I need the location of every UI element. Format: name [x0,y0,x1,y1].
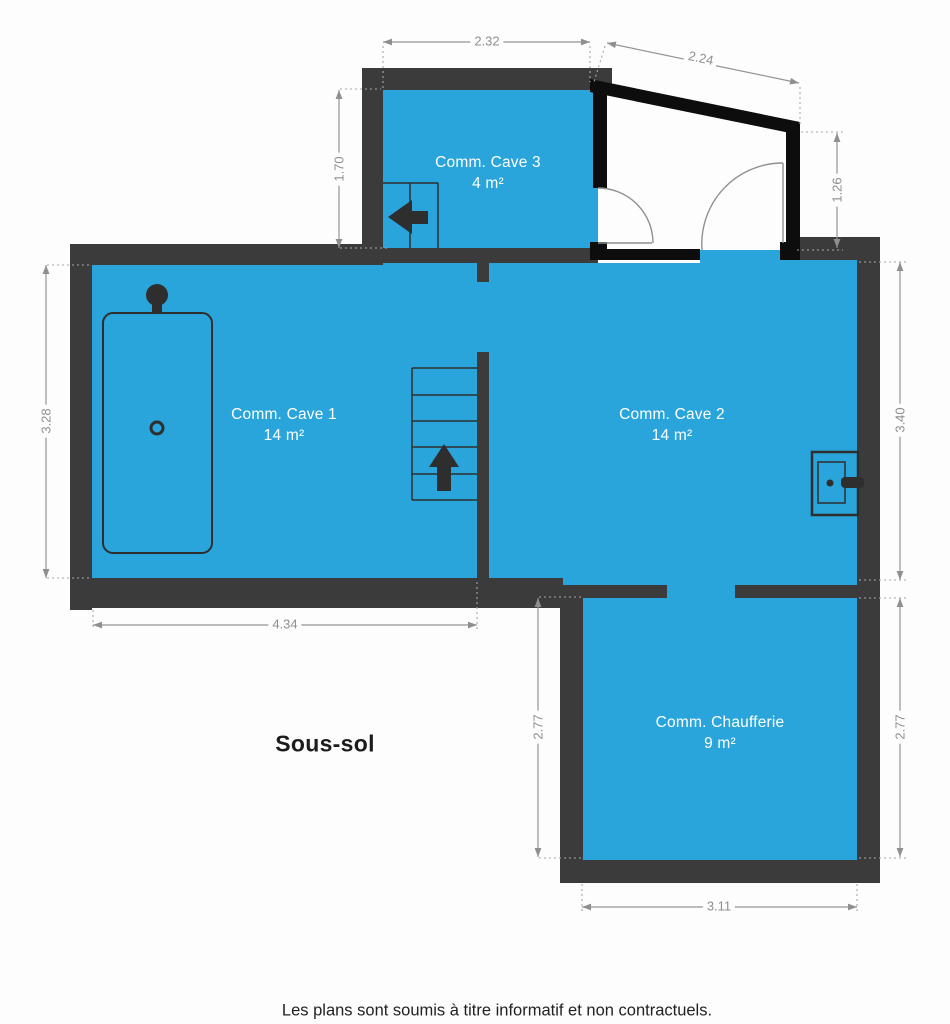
wall-chaufferie-left [560,585,583,883]
room-floor-topright-sliver [782,260,858,264]
wall-cave2-chaufferie-b [735,585,857,598]
room-label-chaufferie: Comm. Chaufferie 9 m² [656,712,785,754]
room-area: 9 m² [656,733,785,754]
dim-label-cave1-bottom: 4.34 [268,617,301,632]
wall-under-cave3 [362,248,598,263]
dim-label-cave2-right: 3.40 [893,403,908,436]
room-floor-cave1-cave2-passage [477,282,489,352]
entrance-walls [590,79,800,260]
wall-stub-cave1-cave2 [477,263,489,282]
wall-chaufferie-bottom [560,860,880,883]
doors-layer [598,163,783,250]
room-name: Comm. Chaufferie [656,712,785,733]
wall-right [857,237,880,883]
dim-label-chaufferie-bottom: 3.11 [703,899,735,914]
wall-entrance-right [786,122,800,260]
wall-entrance-angled [590,79,800,135]
room-label-cave3: Comm. Cave 3 4 m² [435,152,541,194]
dim-label-chaufferie-right: 2.77 [893,710,908,743]
room-floor-chaufferie-doorway [667,585,735,598]
dim-label-cave3-top: 2.32 [470,34,503,49]
wall-entrance-right-stub [780,242,800,260]
wall-main-bottom [70,578,563,608]
wall-main-top [70,244,362,265]
door-swing-arc-right [702,163,783,250]
room-label-cave1: Comm. Cave 1 14 m² [231,404,337,446]
wall-cave3-top [362,68,612,90]
wall-left [70,244,92,610]
room-floor-under-entrance [700,250,782,264]
dim-label-chaufferie-left: 2.77 [531,710,546,743]
room-name: Comm. Cave 3 [435,152,541,173]
dim-label-entrance-right: 1.26 [830,173,845,206]
dim-label-cave3-left: 1.70 [332,152,347,185]
room-area: 14 m² [231,425,337,446]
room-area: 4 m² [435,173,541,194]
wall-cave3-right-upper [593,85,607,188]
floor-plan-page: Comm. Cave 3 4 m² Comm. Cave 1 14 m² Com… [0,0,950,1024]
room-name: Comm. Cave 2 [619,404,725,425]
plan-title: Sous-sol [275,731,375,758]
wall-cave3-left [362,68,383,265]
room-area: 14 m² [619,425,725,446]
wall-stairs-partition [477,352,489,585]
dim-label-cave1-left: 3.28 [39,404,54,437]
wall-cave2-chaufferie-a [563,585,667,598]
room-name: Comm. Cave 1 [231,404,337,425]
footer-disclaimer: Les plans sont soumis à titre informatif… [282,1002,712,1021]
room-label-cave2: Comm. Cave 2 14 m² [619,404,725,446]
door-swing-arc-left [598,188,653,243]
wall-entrance-threshold [593,249,700,260]
